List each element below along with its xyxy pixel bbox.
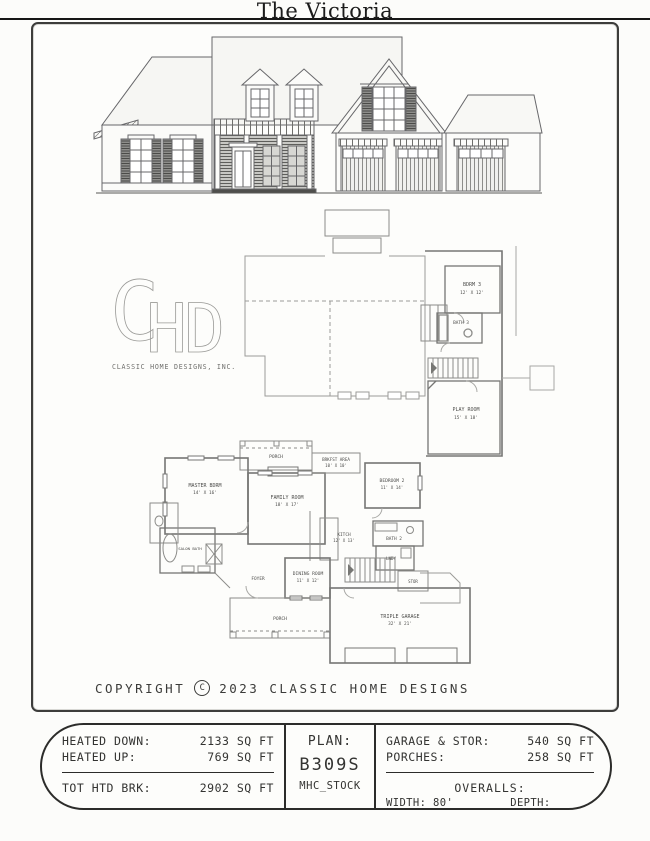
room-label-bedroom2: BEDROOM 2 [380, 478, 405, 484]
room-label-porch-top: PORCH [269, 454, 283, 460]
porches-value: 258 SQ FT [527, 750, 594, 766]
room-dims-garage: 32' X 21' [388, 621, 412, 627]
room-dims-family: 18' X 17' [275, 502, 299, 508]
tot-htd-row: TOT HTD BRK: 2902 SQ FT [62, 781, 274, 797]
copyright-symbol-icon: C [194, 680, 210, 696]
garage-stor-label: GARAGE & STOR: [386, 734, 490, 750]
room-label-dining: DINING ROOM [293, 571, 324, 577]
garage-door-3 [454, 139, 508, 191]
upper-floor-plan: BDRM 3 12' X 12' BATH 3 PLAY ROOM 15' X … [240, 206, 556, 458]
left-wing [94, 57, 212, 191]
garage-door-2 [394, 139, 442, 191]
kitchen-fixtures [310, 511, 338, 561]
garage-stor-value: 540 SQ FT [527, 734, 594, 750]
room-bath3-walls [437, 313, 482, 343]
garage-stor-row: GARAGE & STOR: 540 SQ FT [386, 734, 594, 750]
spec-table: HEATED DOWN: 2133 SQ FT HEATED UP: 769 S… [40, 723, 612, 810]
right-garage-wing [444, 95, 542, 191]
room-label-porch-bottom: PORCH [273, 616, 287, 622]
logo-letter-d: D [184, 290, 225, 369]
room-label-brkfst: BRKFST AREA [322, 457, 350, 462]
copyright-word: COPYRIGHT [95, 681, 185, 696]
attic-roof-outline [245, 256, 425, 399]
spec-areas-column: HEATED DOWN: 2133 SQ FT HEATED UP: 769 S… [42, 725, 284, 808]
room-dims-playroom: 15' X 18' [454, 415, 478, 421]
logo-company-name: CLASSIC HOME DESIGNS, INC. [112, 363, 236, 371]
page-title: The Victoria [0, 0, 650, 23]
room-label-salonbath: SALON BATH [178, 546, 202, 551]
chimney-outline [325, 210, 389, 253]
main-floor-plan: PORCH MASTER BDRM 14' X 16' FAMILY ROOM … [148, 426, 490, 678]
room-bdrm3-walls [445, 266, 500, 313]
left-window-2 [163, 135, 203, 183]
room-dims-brkfst: 10' X 10' [325, 463, 347, 468]
copyright-line: COPYRIGHT C 2023 CLASSIC HOME DESIGNS [95, 680, 470, 696]
tot-htd-label: TOT HTD BRK: [62, 781, 151, 797]
heated-up-row: HEATED UP: 769 SQ FT [62, 750, 274, 766]
plan-label: PLAN: [286, 734, 374, 749]
porches-row: PORCHES: 258 SQ FT [386, 750, 594, 766]
plan-number: B309S [286, 755, 374, 775]
room-label-bath2: BATH 2 [386, 536, 402, 542]
garage-door-1 [339, 139, 387, 191]
room-label-family: FAMILY ROOM [270, 495, 303, 501]
room-dims-kitch: 12' X 13' [333, 538, 355, 543]
front-elevation-drawing [93, 33, 545, 205]
spec-plan-column: PLAN: B309S MHC_STOCK [284, 725, 376, 808]
porch-window-1 [263, 146, 280, 186]
front-door [229, 143, 257, 191]
upper-deck-lines [502, 246, 554, 390]
copyright-year-company: 2023 CLASSIC HOME DESIGNS [219, 681, 470, 696]
room-label-lndy: LNDY [386, 556, 397, 561]
heated-down-row: HEATED DOWN: 2133 SQ FT [62, 734, 274, 750]
room-dims-dining: 11' X 12' [297, 578, 320, 583]
room-label-stor: STOR [408, 579, 418, 584]
room-label-bath3: BATH 3 [453, 320, 469, 326]
heated-up-value: 769 SQ FT [207, 750, 274, 766]
center-porch-section [212, 119, 316, 193]
left-window-1 [121, 135, 161, 183]
logo-letter-h: H [146, 290, 187, 369]
tot-htd-value: 2902 SQ FT [200, 781, 274, 797]
room-dims-bdrm3: 12' X 12' [460, 290, 484, 296]
room-label-foyer: FOYER [251, 576, 265, 582]
room-dims-master: 14' X 16' [193, 490, 217, 496]
spec-overalls-column: GARAGE & STOR: 540 SQ FT PORCHES: 258 SQ… [376, 725, 610, 808]
spec-divider-right [386, 772, 594, 773]
overall-depth: DEPTH: 63'-4" [510, 797, 594, 810]
overalls-label: OVERALLS: [386, 781, 594, 795]
porch-window-2 [288, 146, 305, 186]
plan-series: MHC_STOCK [286, 780, 374, 792]
plan-sheet: The Victoria [0, 0, 650, 841]
overall-width: WIDTH: 80' -5" [386, 797, 476, 810]
room-label-playroom: PLAY ROOM [452, 407, 479, 413]
room-bath2-walls [373, 521, 423, 546]
room-label-garage: TRIPLE GARAGE [380, 614, 419, 620]
overall-dimensions-row: WIDTH: 80' -5" DEPTH: 63'-4" [386, 797, 594, 810]
porches-label: PORCHES: [386, 750, 445, 766]
room-dims-bedroom2: 11' X 14' [381, 485, 404, 490]
heated-up-label: HEATED UP: [62, 750, 136, 766]
room-label-bdrm3: BDRM 3 [463, 282, 481, 288]
company-logo: C H D CLASSIC HOME DESIGNS, INC. [110, 276, 242, 378]
gable-window [360, 84, 416, 131]
upper-stairs [428, 358, 478, 378]
spec-divider-left [62, 772, 274, 773]
heated-down-label: HEATED DOWN: [62, 734, 151, 750]
room-label-master: MASTER BDRM [188, 483, 221, 489]
heated-down-value: 2133 SQ FT [200, 734, 274, 750]
